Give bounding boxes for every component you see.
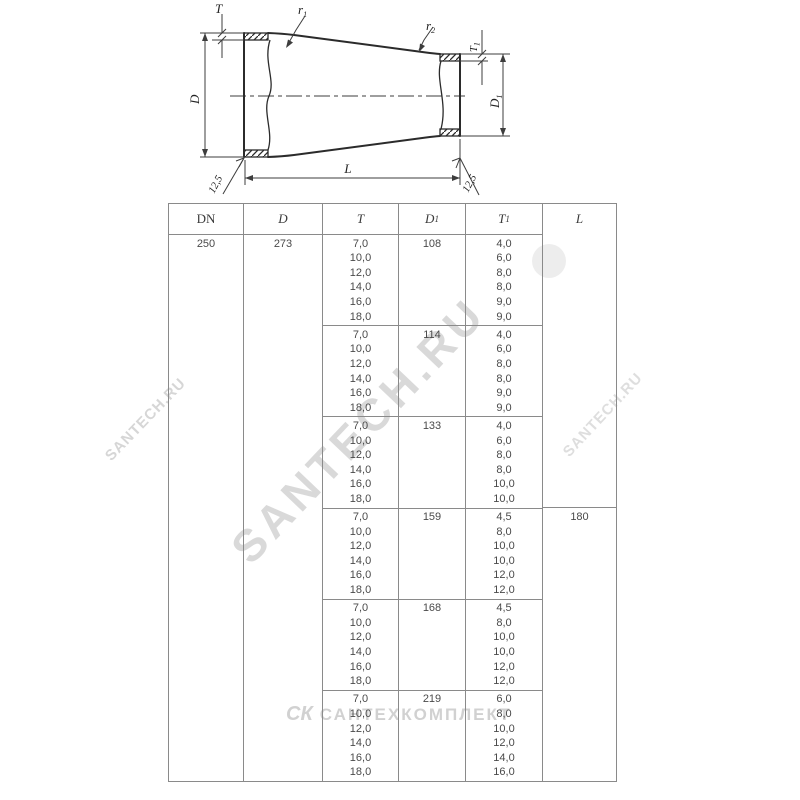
- table-cell: 8,0: [466, 463, 542, 477]
- table-header-t: T: [323, 204, 398, 235]
- table-cell: [543, 674, 616, 688]
- table-cell: [244, 433, 322, 447]
- table-cell: [169, 251, 243, 265]
- table-cell: 12,0: [466, 674, 542, 688]
- table-cell: 16,0: [323, 751, 398, 765]
- table-cell: 12,0: [323, 357, 398, 371]
- table-cell: [169, 401, 243, 415]
- table-cell: [399, 386, 465, 400]
- table-cell: [169, 510, 243, 524]
- table-cell: [244, 419, 322, 433]
- table-cell: [169, 751, 243, 765]
- table-cell: 10,0: [323, 525, 398, 539]
- table-cell: [169, 692, 243, 706]
- table-cell: [399, 616, 465, 630]
- table-cell: [543, 447, 616, 461]
- table-cell: 10,0: [323, 434, 398, 448]
- table-cell: [169, 736, 243, 750]
- table-cell: [399, 751, 465, 765]
- table-cell: [169, 419, 243, 433]
- dim-label-D1: D1: [487, 95, 504, 109]
- table-cell: [399, 568, 465, 582]
- table-cell: [169, 448, 243, 462]
- table-cell: [244, 372, 322, 386]
- table-cell: [169, 328, 243, 342]
- table-cell: [543, 386, 616, 400]
- table-cell: 8,0: [466, 280, 542, 294]
- table-cell: [543, 721, 616, 735]
- table-cell: [169, 478, 243, 492]
- table-cell: [399, 310, 465, 324]
- table-cell: 10,0: [466, 630, 542, 644]
- dim-label-T: T: [215, 1, 223, 16]
- table-cell: [244, 401, 322, 415]
- table-cell: [244, 251, 322, 265]
- table-cell: [543, 706, 616, 720]
- table-cell: [169, 281, 243, 295]
- table-header-dn: DN: [169, 204, 243, 235]
- table-cell: 18,0: [323, 765, 398, 779]
- table-cell: [169, 524, 243, 538]
- table-cell: 8,0: [466, 707, 542, 721]
- table-cell: [169, 296, 243, 310]
- table-cell: [543, 583, 616, 597]
- table-cell: [244, 583, 322, 597]
- table-cell: 18,0: [323, 674, 398, 688]
- table-cell: [543, 250, 616, 264]
- table-cell: [543, 601, 616, 615]
- table-cell: 9,0: [466, 310, 542, 324]
- table-cell: [399, 525, 465, 539]
- small-end-wall-top: [440, 54, 460, 61]
- cone-top-outline: [268, 33, 440, 54]
- table-cell: [244, 630, 322, 644]
- table-cell: [169, 630, 243, 644]
- table-cell: [543, 418, 616, 432]
- table-cell: 12,0: [323, 630, 398, 644]
- col-t1: T1 4,06,08,08,09,09,04,06,08,08,09,09,04…: [465, 204, 542, 781]
- table-header-d1: D1: [399, 204, 465, 235]
- table-cell: 18,0: [323, 583, 398, 597]
- table-cell: 12,0: [466, 568, 542, 582]
- table-cell: [169, 583, 243, 597]
- table-cell: [169, 765, 243, 779]
- table-cell: 219: [399, 692, 465, 706]
- small-end-wall-bottom: [440, 129, 460, 136]
- reducer-drawing: D T r1 r2 T1 D1: [0, 0, 800, 200]
- table-cell: [244, 296, 322, 310]
- table-cell: [399, 707, 465, 721]
- col-l: L 180: [542, 204, 616, 781]
- table-cell: [543, 371, 616, 385]
- table-cell: 6,0: [466, 434, 542, 448]
- table-cell: 18,0: [323, 310, 398, 324]
- table-cell: 4,5: [466, 510, 542, 524]
- table-cell: 18,0: [323, 401, 398, 415]
- table-cell: 8,0: [466, 616, 542, 630]
- table-cell: [169, 645, 243, 659]
- table-cell: [244, 310, 322, 324]
- table-cell: [399, 539, 465, 553]
- table-cell: [244, 765, 322, 779]
- table-cell: [543, 462, 616, 476]
- table-cell: 16,0: [466, 765, 542, 779]
- table-cell: [244, 601, 322, 615]
- table-cell: [244, 615, 322, 629]
- table-cell: 18,0: [323, 492, 398, 506]
- table-cell: [244, 448, 322, 462]
- table-cell: 12,0: [323, 448, 398, 462]
- table-cell: [244, 539, 322, 553]
- table-cell: [169, 539, 243, 553]
- table-cell: [543, 645, 616, 659]
- table-cell: [399, 280, 465, 294]
- table-cell: [169, 310, 243, 324]
- table-cell: [543, 295, 616, 309]
- col-d1: D1 108114133159168219: [398, 204, 465, 781]
- table-cell: 12,0: [323, 539, 398, 553]
- table-cell: [399, 722, 465, 736]
- table-cell: 14,0: [323, 736, 398, 750]
- table-cell: [244, 706, 322, 720]
- table-cell: 9,0: [466, 295, 542, 309]
- table-cell: [244, 674, 322, 688]
- table-cell: 12,0: [323, 722, 398, 736]
- table-cell: 273: [244, 237, 322, 251]
- table-cell: [244, 342, 322, 356]
- reducer-spec-page: SANTECH.RU SANTECH.RU SANTECH.RU СК САНТ…: [0, 0, 800, 800]
- dimensions-table: DN 250 D 273 T 7,010,012,014,016,018,07,…: [168, 203, 617, 782]
- table-cell: [399, 266, 465, 280]
- table-cell: [399, 583, 465, 597]
- table-cell: 7,0: [323, 237, 398, 251]
- table-cell: [543, 341, 616, 355]
- table-cell: [543, 491, 616, 505]
- table-cell: 10,0: [466, 539, 542, 553]
- table-cell: 12,0: [466, 660, 542, 674]
- table-cell: [244, 721, 322, 735]
- table-cell: [399, 463, 465, 477]
- table-cell: [244, 692, 322, 706]
- table-cell: [244, 357, 322, 371]
- table-cell: [169, 463, 243, 477]
- table-cell: 8,0: [466, 266, 542, 280]
- table-cell: [169, 266, 243, 280]
- table-cell: [244, 463, 322, 477]
- big-end-wall-top: [244, 33, 268, 40]
- table-cell: 6,0: [466, 692, 542, 706]
- col-t: T 7,010,012,014,016,018,07,010,012,014,0…: [322, 204, 398, 781]
- table-cell: [169, 660, 243, 674]
- table-cell: [399, 736, 465, 750]
- table-cell: 10,0: [466, 554, 542, 568]
- table-cell: 7,0: [323, 510, 398, 524]
- table-cell: 12,0: [466, 583, 542, 597]
- table-cell: 4,0: [466, 328, 542, 342]
- table-cell: [543, 280, 616, 294]
- table-cell: [244, 387, 322, 401]
- table-cell: [399, 295, 465, 309]
- table-cell: [244, 569, 322, 583]
- table-cell: [244, 554, 322, 568]
- table-cell: [244, 660, 322, 674]
- table-cell: [543, 327, 616, 341]
- table-cell: [244, 510, 322, 524]
- table-cell: [543, 477, 616, 491]
- table-cell: [399, 342, 465, 356]
- table-cell: [244, 328, 322, 342]
- table-cell: 9,0: [466, 401, 542, 415]
- table-cell: [543, 309, 616, 323]
- col-dn: DN 250: [169, 204, 243, 781]
- break-line-right: [439, 61, 443, 129]
- table-cell: 16,0: [323, 568, 398, 582]
- table-cell: 16,0: [323, 477, 398, 491]
- table-cell: [244, 524, 322, 538]
- table-cell: [169, 569, 243, 583]
- table-cell: [169, 601, 243, 615]
- table-cell: 8,0: [466, 372, 542, 386]
- table-cell: [169, 721, 243, 735]
- table-cell: [399, 401, 465, 415]
- table-cell: 16,0: [323, 295, 398, 309]
- table-cell: 16,0: [323, 386, 398, 400]
- break-line-left: [267, 40, 271, 150]
- dim-label-chamfer-left: 12,5: [207, 174, 225, 195]
- table-cell: 6,0: [466, 342, 542, 356]
- dim-label-r1: r1: [298, 2, 307, 19]
- table-cell: [543, 660, 616, 674]
- table-cell: 4,5: [466, 601, 542, 615]
- table-cell: [399, 630, 465, 644]
- table-cell: [244, 281, 322, 295]
- table-cell: 12,0: [466, 736, 542, 750]
- table-cell: 14,0: [466, 751, 542, 765]
- table-cell: [399, 645, 465, 659]
- table-cell: 14,0: [323, 372, 398, 386]
- table-cell: [543, 569, 616, 583]
- table-cell: 16,0: [323, 660, 398, 674]
- table-cell: [543, 765, 616, 779]
- table-cell: [543, 356, 616, 370]
- table-cell: 14,0: [323, 645, 398, 659]
- table-cell: [543, 432, 616, 446]
- table-cell: [169, 554, 243, 568]
- table-cell: [169, 615, 243, 629]
- table-cell: 4,0: [466, 237, 542, 251]
- table-cell: [399, 448, 465, 462]
- table-cell: 8,0: [466, 448, 542, 462]
- table-cell: [399, 372, 465, 386]
- table-cell: [244, 492, 322, 506]
- table-cell: [543, 751, 616, 765]
- table-cell: [399, 660, 465, 674]
- table-cell: 7,0: [323, 601, 398, 615]
- table-cell: [169, 357, 243, 371]
- table-cell: 14,0: [323, 280, 398, 294]
- table-cell: [169, 372, 243, 386]
- table-cell: 180: [543, 510, 616, 524]
- dim-label-r2: r2: [426, 18, 435, 35]
- table-cell: [543, 400, 616, 414]
- table-cell: 10,0: [466, 645, 542, 659]
- table-cell: 10,0: [466, 722, 542, 736]
- table-cell: [169, 706, 243, 720]
- cone-bottom-outline: [268, 136, 440, 157]
- table-cell: 10,0: [323, 616, 398, 630]
- table-cell: [244, 478, 322, 492]
- table-cell: [399, 477, 465, 491]
- table-cell: [543, 554, 616, 568]
- table-cell: 14,0: [323, 463, 398, 477]
- table-cell: 10,0: [466, 477, 542, 491]
- table-cell: 4,0: [466, 419, 542, 433]
- table-header-t1: T1: [466, 204, 542, 235]
- table-cell: [399, 674, 465, 688]
- table-cell: [399, 251, 465, 265]
- table-cell: [399, 434, 465, 448]
- table-cell: [543, 265, 616, 279]
- table-header-l: L: [543, 204, 616, 234]
- table-cell: [543, 524, 616, 538]
- table-cell: [244, 645, 322, 659]
- table-cell: 7,0: [323, 419, 398, 433]
- table-cell: 8,0: [466, 525, 542, 539]
- table-cell: [169, 492, 243, 506]
- table-cell: 168: [399, 601, 465, 615]
- table-cell: [543, 539, 616, 553]
- table-cell: 7,0: [323, 692, 398, 706]
- table-cell: 14,0: [323, 554, 398, 568]
- table-cell: [543, 692, 616, 706]
- table-cell: 10,0: [466, 492, 542, 506]
- dim-label-T1: T1: [469, 42, 482, 52]
- table-cell: [399, 492, 465, 506]
- table-cell: [399, 554, 465, 568]
- table-cell: 8,0: [466, 357, 542, 371]
- table-cell: 6,0: [466, 251, 542, 265]
- table-cell: 250: [169, 237, 243, 251]
- table-cell: [399, 357, 465, 371]
- table-cell: [543, 630, 616, 644]
- table-cell: 114: [399, 328, 465, 342]
- table-cell: [169, 387, 243, 401]
- table-cell: [169, 433, 243, 447]
- dim-label-L: L: [343, 161, 351, 176]
- table-cell: 7,0: [323, 328, 398, 342]
- table-cell: 10,0: [323, 707, 398, 721]
- table-cell: 133: [399, 419, 465, 433]
- table-cell: [543, 736, 616, 750]
- col-d: D 273: [243, 204, 322, 781]
- table-cell: [169, 342, 243, 356]
- big-end-wall-bottom: [244, 150, 268, 157]
- table-cell: 108: [399, 237, 465, 251]
- table-cell: 159: [399, 510, 465, 524]
- table-cell: [244, 736, 322, 750]
- table-cell: [543, 236, 616, 250]
- table-header-d: D: [244, 204, 322, 235]
- table-cell: 9,0: [466, 386, 542, 400]
- table-cell: [169, 674, 243, 688]
- table-cell: 10,0: [323, 251, 398, 265]
- table-cell: 12,0: [323, 266, 398, 280]
- dim-label-D: D: [187, 94, 202, 105]
- table-cell: [244, 751, 322, 765]
- table-cell: [399, 765, 465, 779]
- table-cell: [244, 266, 322, 280]
- table-cell: 10,0: [323, 342, 398, 356]
- table-cell: [543, 615, 616, 629]
